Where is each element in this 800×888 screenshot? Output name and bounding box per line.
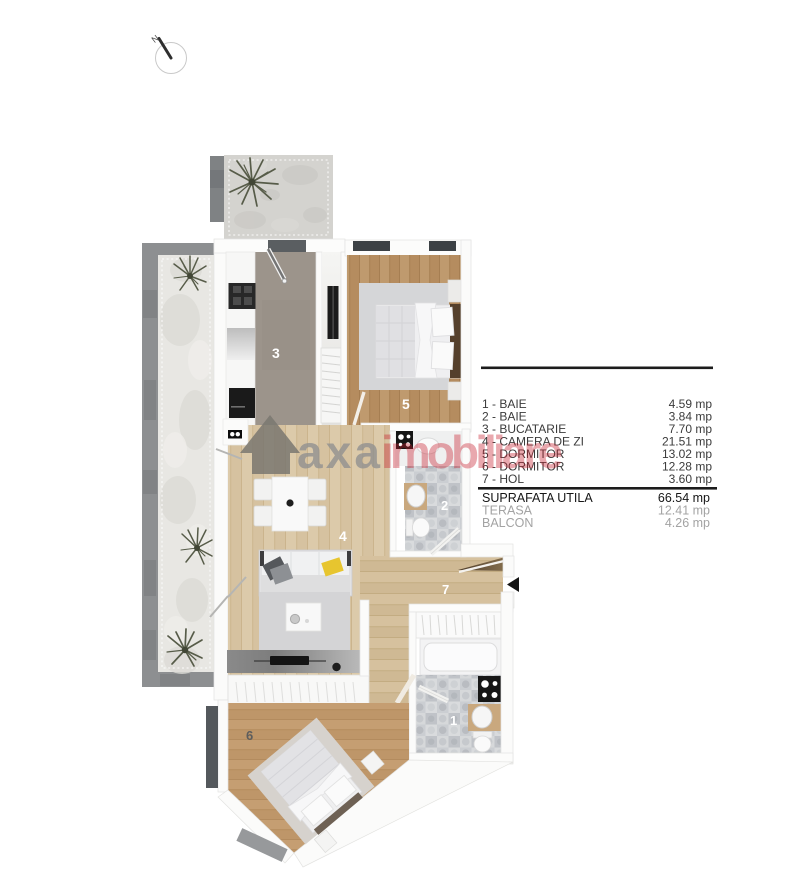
svg-text:6: 6 xyxy=(246,728,253,743)
svg-text:4: 4 xyxy=(339,528,347,544)
svg-text:BALCON: BALCON xyxy=(482,516,533,530)
svg-text:2: 2 xyxy=(441,498,448,513)
svg-text:axa: axa xyxy=(297,426,380,478)
svg-text:imobiliare: imobiliare xyxy=(381,426,563,478)
svg-text:5: 5 xyxy=(402,396,410,412)
svg-text:3: 3 xyxy=(272,345,280,361)
svg-text:7: 7 xyxy=(442,582,449,597)
svg-text:1: 1 xyxy=(450,713,457,728)
svg-text:4.26 mp: 4.26 mp xyxy=(665,516,710,530)
svg-text:3.60 mp: 3.60 mp xyxy=(669,472,713,486)
